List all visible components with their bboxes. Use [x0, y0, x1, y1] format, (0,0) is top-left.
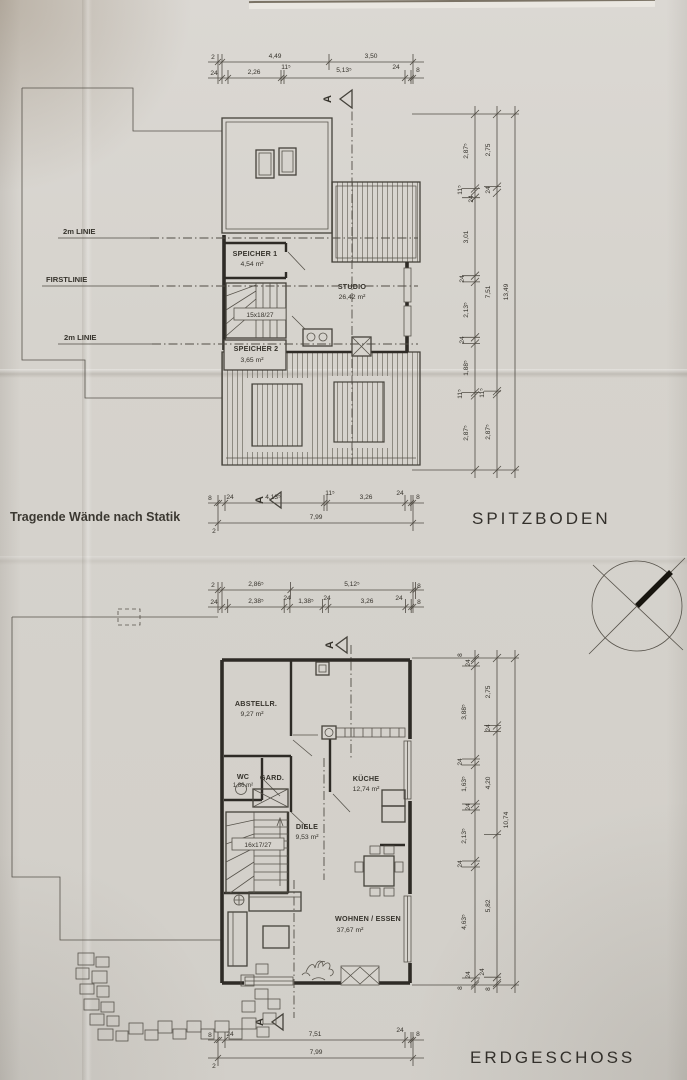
- scanned-floor-plan-sheet: 15x18/27 2m LINIE F: [0, 0, 687, 1080]
- dim-label: 24: [479, 968, 486, 976]
- spitzboden-room-labels: SPEICHER 1 4,54 m² STUDIO 26,42 m² SPEIC…: [233, 249, 367, 364]
- dim-label: 1,88⁵: [463, 360, 470, 376]
- dim-label: 5,82: [485, 899, 492, 912]
- dim-label: 4,49: [269, 53, 282, 60]
- dim-label: 8: [416, 67, 420, 74]
- dim-label: 8: [485, 987, 492, 991]
- section-marker-top: A: [322, 90, 352, 108]
- dim-label: 24: [323, 595, 331, 602]
- dim-label: 8: [416, 494, 420, 501]
- dim-label: 24: [457, 860, 464, 868]
- svg-text:A: A: [322, 95, 334, 103]
- room-name: ABSTELLR.: [235, 699, 277, 708]
- north-needle: [637, 572, 671, 606]
- spitzboden-dims-top: 2 4,49 3,50 24 2,26 11⁵ 5,13⁵ 24 8: [208, 53, 424, 84]
- dim-label: 24: [485, 724, 492, 732]
- dim-label: 24: [396, 490, 404, 497]
- chimney: [352, 337, 371, 356]
- erdgeschoss-room-labels: ABSTELLR. 9,27 m² WC 1,86 m² GARD. KÜCHE…: [233, 699, 401, 934]
- dim-label: 24: [210, 70, 218, 77]
- dim-label: 24: [226, 494, 234, 501]
- dim-label: 2,87⁵: [485, 424, 492, 440]
- dim-label: 2,87⁵: [463, 143, 470, 159]
- room-area: 9,53 m²: [295, 834, 319, 841]
- room-area: 12,74 m²: [353, 786, 381, 793]
- stair-label: 16x17/27: [244, 842, 271, 849]
- dim-label: 24: [459, 275, 466, 283]
- section-marker-top-lower: A: [324, 637, 347, 653]
- dim-label: 3,26: [361, 598, 374, 605]
- floor-plan-drawing: 15x18/27 2m LINIE F: [0, 0, 687, 1080]
- dim-label: 2: [211, 54, 215, 61]
- dining-table-set: [355, 846, 403, 896]
- dim-label: 11⁵: [457, 185, 464, 195]
- room-area: 9,27 m²: [240, 711, 264, 718]
- dim-label: 5,12⁵: [344, 581, 360, 588]
- dim-label: 2: [212, 1063, 216, 1070]
- roof-panel-left: [222, 118, 332, 233]
- dim-label: 1,38⁵: [298, 598, 314, 605]
- dim-label: 5,13⁵: [336, 67, 352, 74]
- room-area: 3,65 m²: [240, 357, 264, 364]
- spitzboden-plan: 15x18/27 2m LINIE F: [10, 53, 611, 535]
- dim-label-total: 13,49: [503, 283, 510, 300]
- dim-label: 3,01: [463, 230, 470, 243]
- dim-label: 2,26: [248, 69, 261, 76]
- room-name: WC: [237, 772, 249, 781]
- dim-label: 24: [465, 971, 472, 979]
- room-name: GARD.: [260, 773, 284, 782]
- svg-text:A: A: [324, 641, 336, 649]
- room-name: STUDIO: [338, 282, 367, 291]
- room-name: KÜCHE: [353, 774, 380, 783]
- dim-label: 4,13⁵: [265, 494, 281, 501]
- dormer-right: [328, 376, 390, 448]
- dim-label: 11⁵: [281, 64, 291, 71]
- roof-panel-right: [332, 182, 420, 262]
- dim-label: 24: [210, 599, 218, 606]
- dim-label: 8: [416, 1031, 420, 1038]
- living-room-furniture: [228, 892, 333, 980]
- section-line-a-lower: [294, 645, 351, 1018]
- dim-label: 24: [396, 1027, 404, 1034]
- room-name: DIELE: [296, 822, 318, 831]
- upper-plan-title: SPITZBODEN: [472, 509, 611, 528]
- site-outline: [12, 617, 222, 940]
- dim-label: 8: [417, 583, 421, 590]
- dim-label-total: 10,74: [503, 811, 510, 828]
- right-wall-windows: [404, 268, 411, 336]
- dim-label: 24: [395, 595, 403, 602]
- erdgeschoss-dims-right: 8 24 3,88⁵ 24 1,63⁵ 24 2,13⁵ 24 4,63⁵ 24…: [412, 650, 519, 993]
- dim-label: 8: [457, 986, 464, 990]
- dim-label: 7,51: [309, 1031, 322, 1038]
- dim-label: 2,13⁵: [461, 828, 468, 844]
- dim-label: 3,88⁵: [461, 704, 468, 720]
- dim-label: 24: [485, 186, 492, 194]
- dim-label: 2,87⁵: [463, 425, 470, 441]
- dim-label: 8: [208, 495, 212, 502]
- spitzboden-dims-right: 2,87⁵ 11⁵ 24 3,01 24 2,13⁵ 24 1,88⁵ 11⁵ …: [412, 106, 519, 478]
- dim-label: 4,63⁵: [461, 914, 468, 930]
- room-area: 1,86 m²: [233, 783, 253, 789]
- dim-label: 3,50: [365, 53, 378, 60]
- stair-label: 15x18/27: [246, 312, 273, 319]
- statics-note: Tragende Wände nach Statik: [10, 510, 180, 524]
- shaft: [316, 662, 329, 675]
- dim-label: 11⁵: [457, 389, 464, 399]
- room-name: SPEICHER 1: [233, 249, 278, 258]
- dim-label: 24: [468, 195, 475, 203]
- room-name: SPEICHER 2: [234, 344, 279, 353]
- room-area: 4,54 m²: [240, 261, 264, 268]
- room-area: 26,42 m²: [339, 294, 367, 301]
- lower-plan-title: ERDGESCHOSS: [470, 1048, 635, 1067]
- leader-firstline: FIRSTLINIE: [46, 275, 87, 284]
- dim-label: 2,75: [485, 143, 492, 156]
- adjacent-building-outline: [22, 88, 222, 398]
- room-name: WOHNEN / ESSEN: [335, 914, 401, 923]
- dim-label: 24: [392, 64, 400, 71]
- dim-label: 24: [283, 595, 291, 602]
- room-area: 37,67 m²: [337, 927, 365, 934]
- plant: [302, 961, 333, 980]
- dim-label: 11⁵: [479, 388, 486, 398]
- dim-label: 2,38⁵: [248, 598, 264, 605]
- erdgeschoss-plan: 16x17/27 ABSTELLR. 9,27 m² WC 1,86 m² GA…: [12, 581, 635, 1070]
- dim-label: 2: [212, 528, 216, 535]
- spitzboden-stairs: 15x18/27: [226, 283, 286, 338]
- leader-2m-bottom: 2m LINIE: [64, 333, 97, 342]
- north-compass: [589, 558, 685, 654]
- erdgeschoss-stairs: 16x17/27: [226, 812, 288, 893]
- section-marker-bottom-lower: A: [254, 1014, 283, 1030]
- dim-label: 24: [457, 758, 464, 766]
- dim-label: 8: [208, 1032, 212, 1039]
- dim-label: 1,63⁵: [461, 776, 468, 792]
- dim-label: 7,51: [485, 285, 492, 298]
- dim-label: 8: [457, 653, 464, 657]
- dim-label: 3,26: [360, 494, 373, 501]
- dormer-left: [246, 378, 308, 452]
- spitzboden-dims-bottom: 8 24 4,13⁵ 11⁵ 3,26 24 8 2 7,99: [208, 490, 424, 535]
- skylight-windows: [256, 148, 296, 178]
- dim-label: 24: [465, 659, 472, 667]
- dim-label: 8: [417, 599, 421, 606]
- dim-label: 2,75: [485, 685, 492, 698]
- roof-panel-left-inner: [226, 122, 328, 229]
- dim-label: 11⁵: [325, 490, 335, 497]
- dim-label: 2: [211, 582, 215, 589]
- dim-label: 2,13⁵: [463, 302, 470, 318]
- terrace-paving-stones: [76, 953, 280, 1041]
- leader-2m-top: 2m LINIE: [63, 227, 96, 236]
- dim-label: 24: [459, 336, 466, 344]
- dim-label: 7,99: [310, 1049, 323, 1056]
- dim-label: 7,99: [310, 514, 323, 521]
- dim-label: 2,86⁵: [248, 581, 264, 588]
- dim-label: 4,20: [485, 776, 492, 789]
- erdgeschoss-dims-top: 2 2,86⁵ 5,12⁵ 8 24 2,38⁵ 24 1,38⁵ 24 3,2…: [208, 581, 424, 613]
- dim-label: 24: [465, 803, 472, 811]
- vanity-unit: [303, 329, 332, 346]
- erdgeschoss-dims-bottom: 8 24 7,51 24 8 2 7,99: [208, 1027, 424, 1070]
